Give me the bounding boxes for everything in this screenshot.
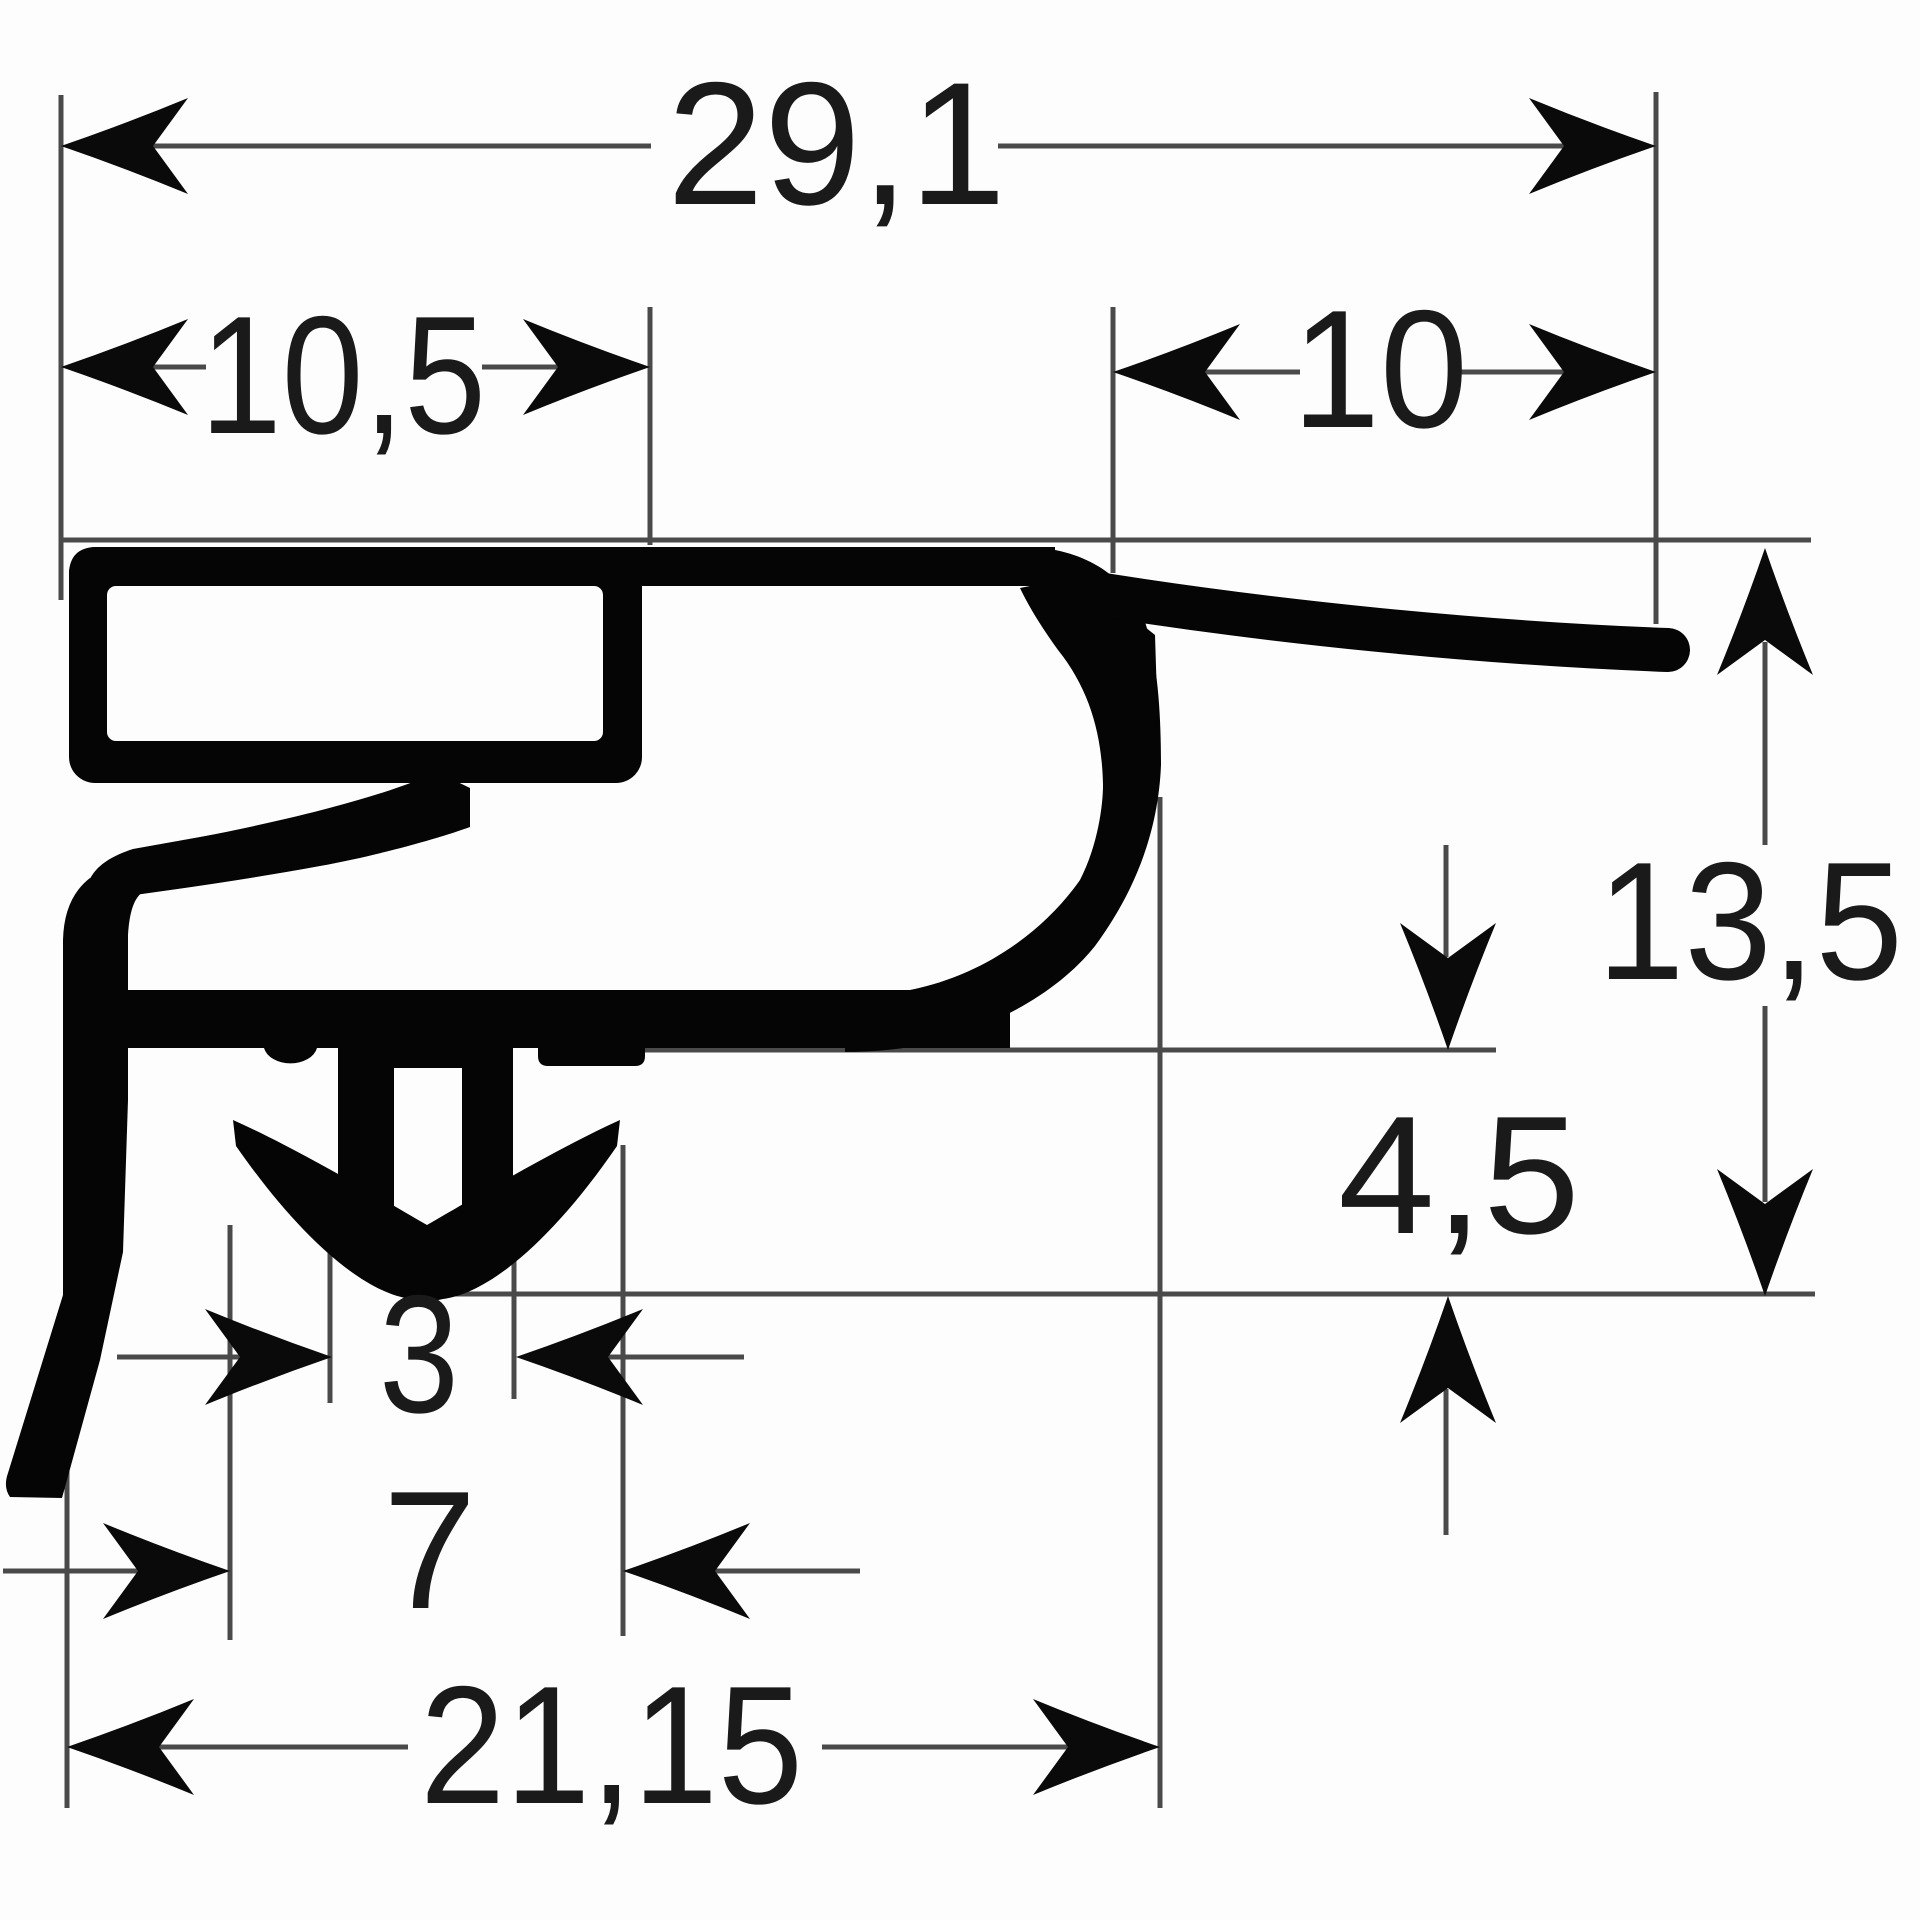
svg-text:10,5: 10,5 [200,281,486,469]
svg-text:10: 10 [1292,275,1468,463]
svg-text:21,15: 21,15 [420,1651,803,1839]
svg-text:13,5: 13,5 [1597,827,1903,1015]
svg-text:29,1: 29,1 [667,47,1006,242]
svg-text:3: 3 [379,1260,459,1448]
svg-text:7: 7 [383,1456,476,1644]
svg-text:4,5: 4,5 [1338,1081,1580,1269]
